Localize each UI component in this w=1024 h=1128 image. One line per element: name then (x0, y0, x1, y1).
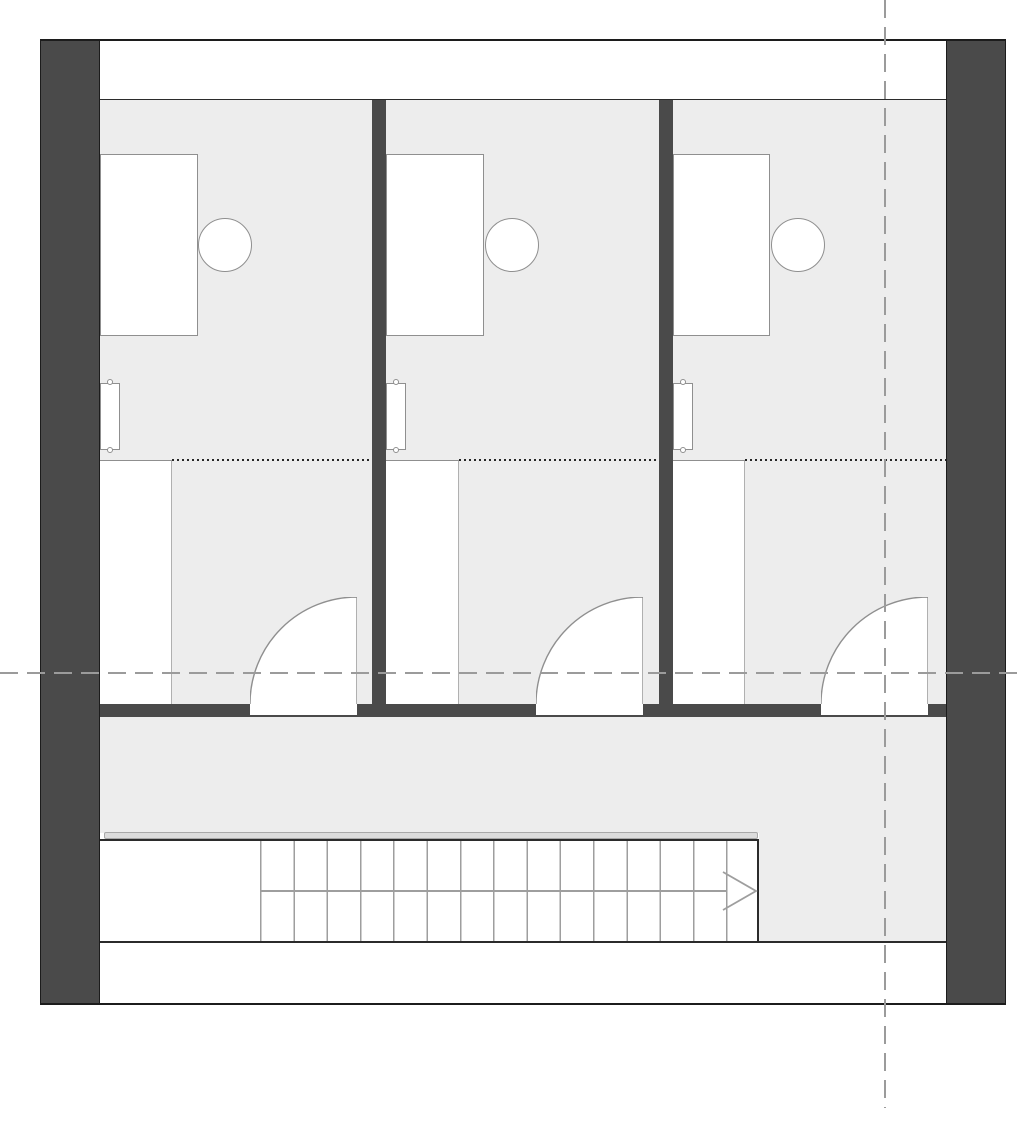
door-swing-room-1 (250, 597, 357, 704)
corridor-wall (100, 704, 946, 717)
door-leaf-area-room-2 (536, 597, 643, 704)
corridor-floor-right-extension (759, 833, 946, 943)
closet-room-3 (673, 460, 745, 704)
partition-wall-2 (659, 100, 673, 704)
radiator-room-3 (673, 383, 693, 450)
stair-walk-line (260, 890, 726, 892)
top-facade-line (40, 39, 1006, 41)
radiator-knob-bottom-room-3 (680, 447, 686, 453)
radiator-knob-bottom-room-1 (107, 447, 113, 453)
radiator-knob-top-room-2 (393, 379, 399, 385)
radiator-room-1 (100, 383, 120, 450)
desk-room-1 (100, 154, 198, 336)
exterior-wall-right (946, 40, 1006, 1005)
chair-room-3 (771, 218, 825, 272)
bottom-facade-line (40, 1003, 1006, 1005)
desk-room-3 (673, 154, 770, 336)
chair-room-1 (198, 218, 252, 272)
corridor-floor (100, 717, 946, 833)
stair-direction-arrow (722, 871, 758, 911)
attic-dotted-line-room-2 (459, 459, 659, 461)
door-opening-room-2 (536, 704, 643, 715)
radiator-knob-bottom-room-2 (393, 447, 399, 453)
door-swing-room-2 (536, 597, 643, 704)
attic-dotted-line-room-3 (745, 459, 946, 461)
attic-dotted-line-room-1 (172, 459, 372, 461)
exterior-wall-left (40, 40, 100, 1005)
radiator-knob-top-room-1 (107, 379, 113, 385)
door-leaf-area-room-3 (821, 597, 928, 704)
arrow-chevron (723, 872, 756, 910)
floor-plan-canvas (0, 0, 1024, 1128)
stair-top-rail (104, 832, 758, 839)
door-leaf-area-room-1 (250, 597, 357, 704)
radiator-knob-top-room-3 (680, 379, 686, 385)
rooms-floor (100, 100, 946, 704)
door-swing-room-3 (821, 597, 928, 704)
door-opening-room-3 (821, 704, 928, 715)
centerline-horizontal (0, 672, 1024, 674)
closet-room-2 (386, 460, 459, 704)
centerline-vertical (884, 0, 886, 1108)
partition-wall-1 (372, 100, 386, 704)
closet-room-1 (100, 460, 172, 704)
chair-room-2 (485, 218, 539, 272)
stair-bottom-line-right (759, 941, 946, 943)
desk-room-2 (386, 154, 484, 336)
door-opening-room-1 (250, 704, 357, 715)
radiator-room-2 (386, 383, 406, 450)
